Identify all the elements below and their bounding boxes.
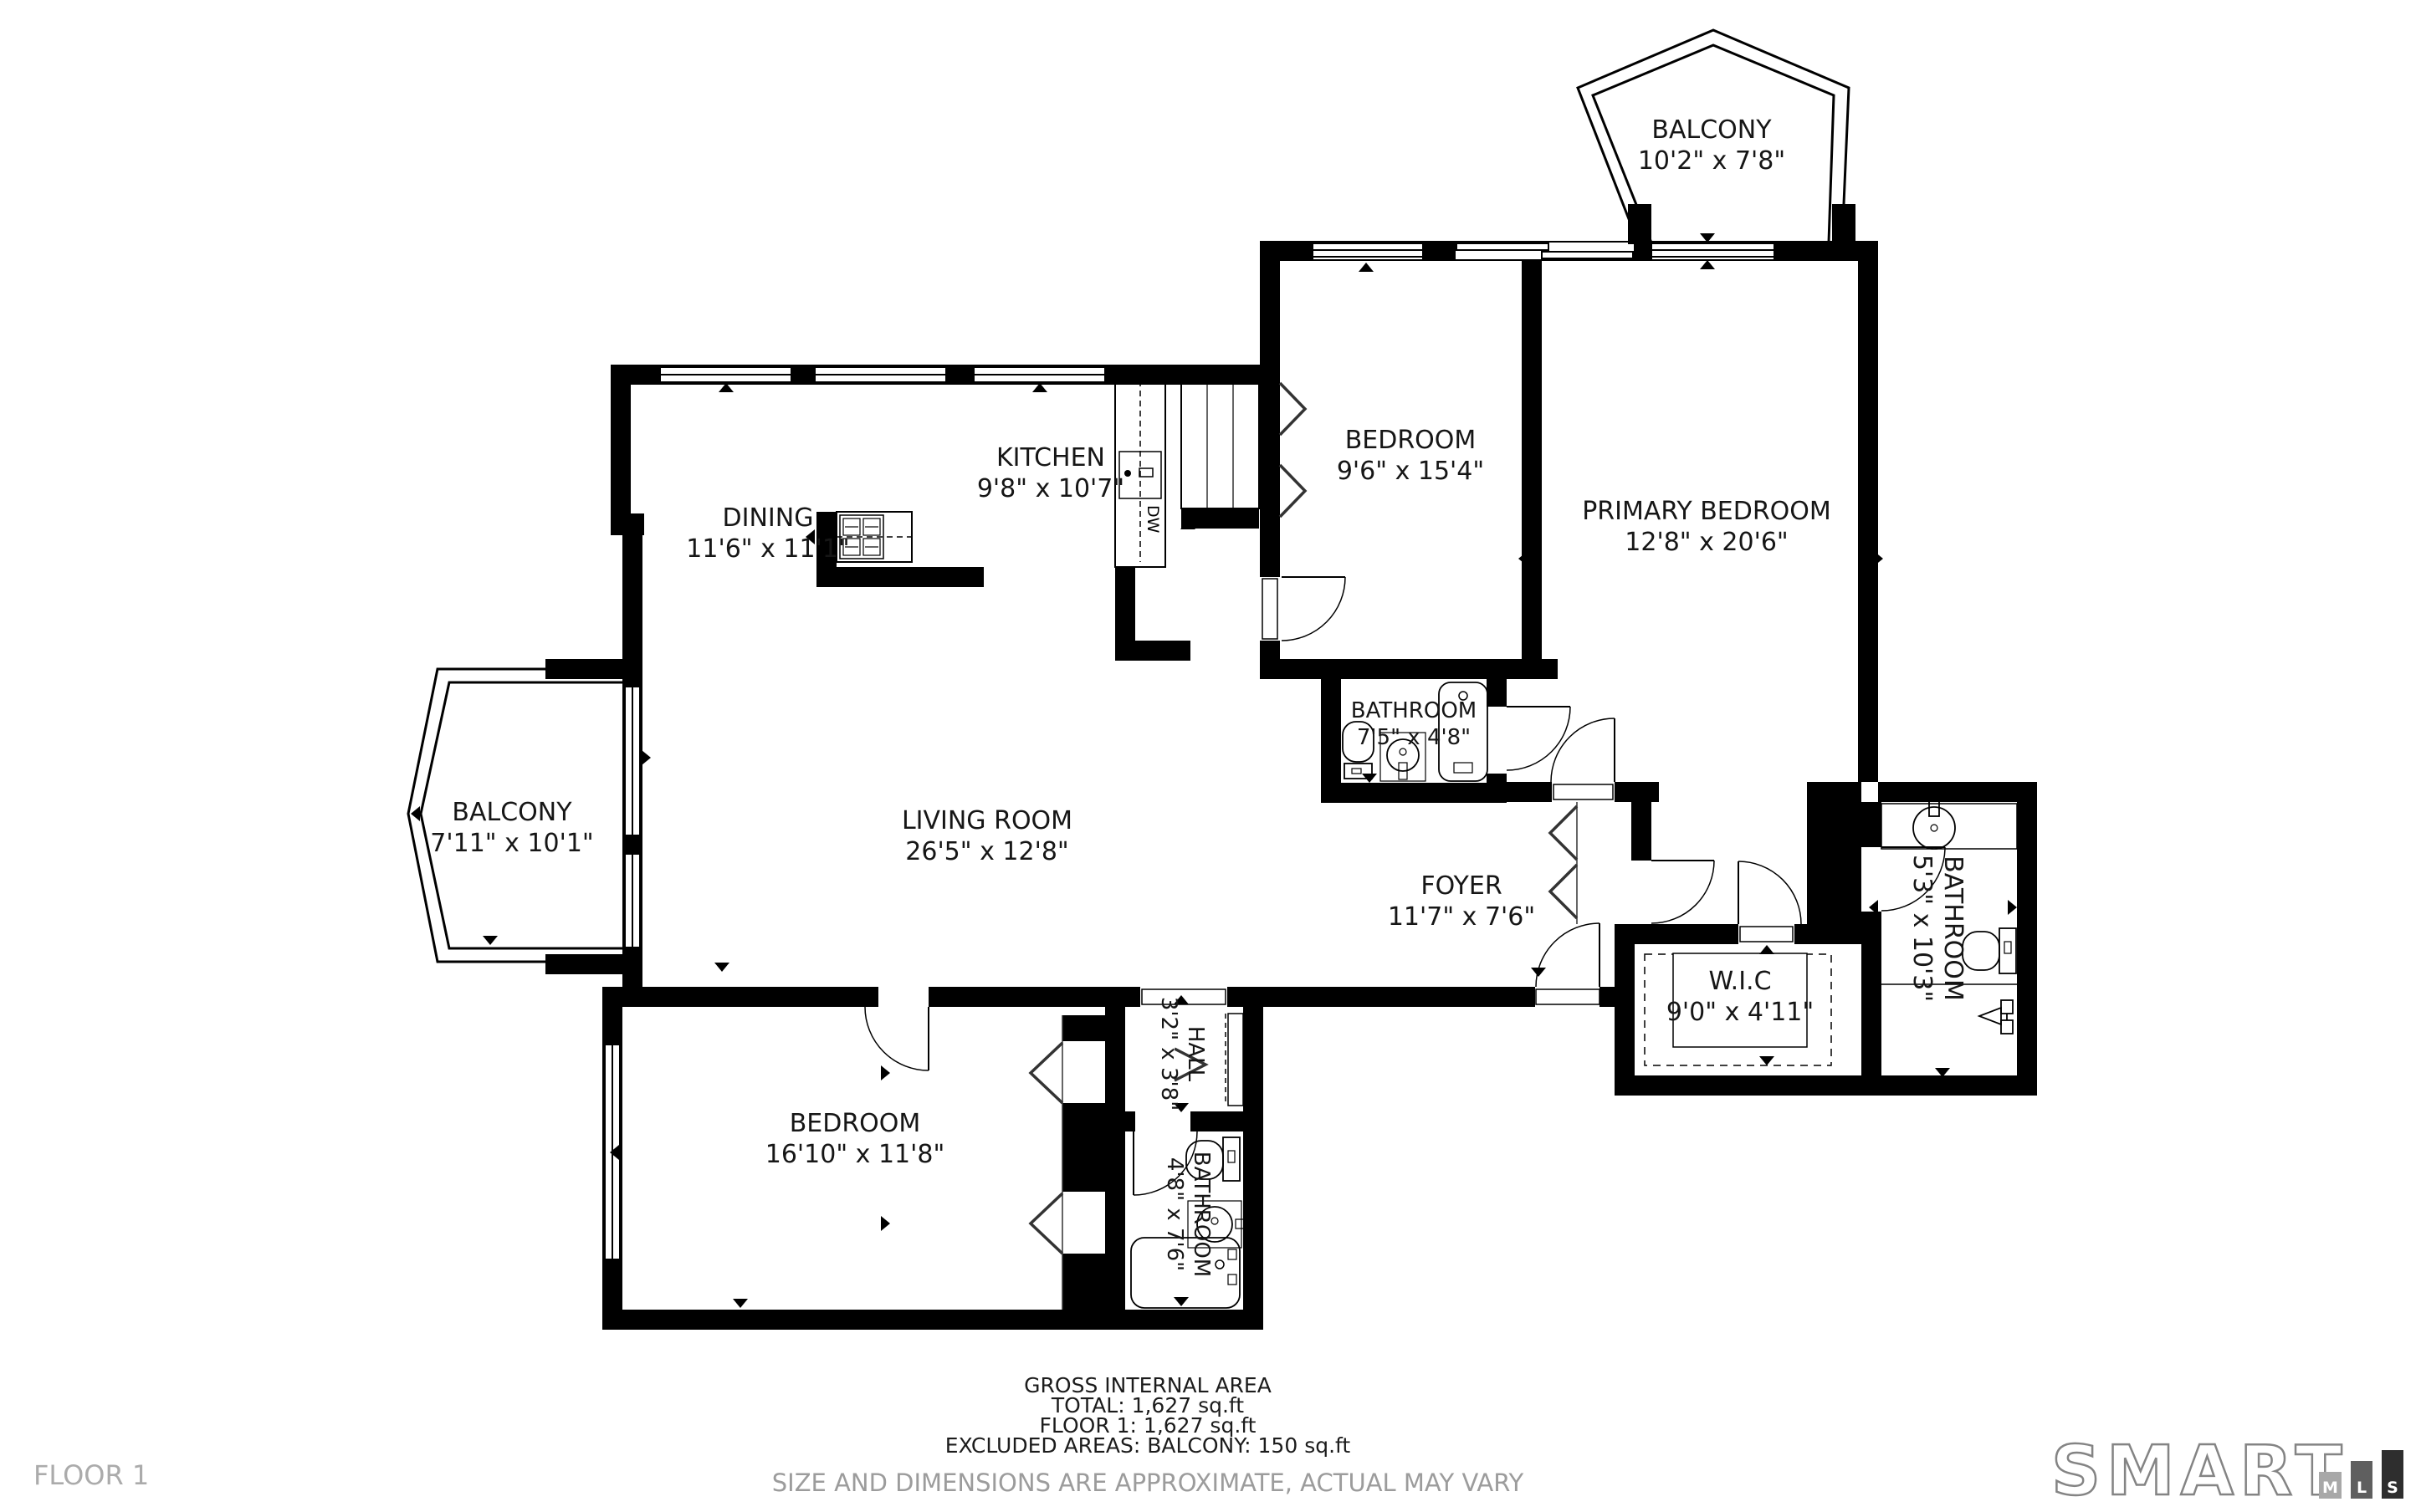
sliding-door-balcony-top	[1456, 243, 1634, 259]
room-label-primary-bedroom: PRIMARY BEDROOM 12'8" x 20'6"	[1582, 496, 1831, 558]
mls-letter-m: M	[2319, 1472, 2342, 1499]
floor-label: FLOOR 1	[33, 1459, 149, 1491]
room-dims: 11'7" x 7'6"	[1388, 902, 1535, 932]
room-name: DINING	[686, 503, 849, 534]
door-wic	[1738, 861, 1801, 924]
room-name: BALCONY	[1638, 115, 1785, 146]
room-label-dining: DINING 11'6" x 11'1"	[686, 503, 849, 564]
balcony-post-right	[1832, 204, 1855, 244]
room-name: KITCHEN	[977, 442, 1124, 473]
toilet-tank-ensuite	[1999, 928, 2016, 973]
window-living-1	[624, 687, 641, 835]
smartmls-logo: SMART M L S	[2051, 1432, 2411, 1505]
room-label-bathroom-primary: BATHROOM 7'5" x 4'8"	[1351, 697, 1477, 751]
room-dims: 9'6" x 15'4"	[1337, 456, 1484, 487]
door-entry	[1536, 923, 1599, 987]
room-name: BATHROOM	[1188, 1152, 1215, 1277]
window-living-2	[624, 855, 641, 947]
room-name: W.I.C	[1666, 966, 1814, 997]
room-dims: 3'2" x 3'8"	[1155, 997, 1182, 1111]
disclaimer-text: SIZE AND DIMENSIONS ARE APPROXIMATE, ACT…	[772, 1469, 1524, 1497]
room-dims: 26'5" x 12'8"	[902, 836, 1072, 867]
room-label-bathroom-hall: BATHROOM 4'8" x 7'6"	[1161, 1152, 1215, 1277]
floorplan-page: DW	[0, 0, 2421, 1512]
window-kitchen	[975, 366, 1104, 383]
refrigerator	[1181, 378, 1259, 508]
balcony-post-left	[1628, 204, 1651, 244]
sink-faucet	[1124, 470, 1131, 477]
door-foyer-corridor	[1651, 861, 1714, 923]
room-name: BEDROOM	[1337, 425, 1484, 456]
mls-letter-l: L	[2351, 1461, 2372, 1499]
floorplan-drawing: DW	[0, 0, 2421, 1512]
window-post	[622, 835, 642, 855]
smart-logo-text: SMART	[2051, 1432, 2348, 1511]
room-label-living-room: LIVING ROOM 26'5" x 12'8"	[902, 805, 1072, 867]
room-label-balcony-top: BALCONY 10'2" x 7'8"	[1638, 115, 1785, 176]
room-name: FOYER	[1388, 871, 1535, 902]
room-name: BATHROOM	[1937, 855, 1968, 1002]
room-label-hall: HALL 3'2" x 3'8"	[1155, 997, 1209, 1111]
room-label-bedroom-top: BEDROOM 9'6" x 15'4"	[1337, 425, 1484, 487]
window-dining-2	[816, 366, 945, 383]
shower-handle	[1979, 1000, 2013, 1034]
bifold-foyer-2	[1550, 865, 1577, 918]
room-label-wic: W.I.C 9'0" x 4'11"	[1666, 966, 1814, 1028]
room-label-foyer: FOYER 11'7" x 7'6"	[1388, 871, 1535, 932]
room-dims: 11'6" x 11'1"	[686, 534, 849, 564]
room-name: HALL	[1182, 997, 1209, 1111]
room-dims: 9'0" x 4'11"	[1666, 997, 1814, 1028]
vanity-sink	[1913, 807, 1955, 849]
bifold-foyer-1	[1550, 806, 1577, 860]
room-name: LIVING ROOM	[902, 805, 1072, 836]
sink-tap	[1139, 468, 1153, 477]
room-dims: 5'3" x 10'3"	[1907, 855, 1937, 1002]
area-summary: GROSS INTERNAL AREA TOTAL: 1,627 sq.ft F…	[945, 1376, 1350, 1456]
room-name: BALCONY	[430, 797, 593, 828]
bifold-bedroom-bottom-1	[1031, 1043, 1062, 1103]
room-label-bathroom-ensuite: BATHROOM 5'3" x 10'3"	[1907, 855, 1968, 1002]
window-primary	[1652, 243, 1774, 259]
bifold-bedroom-top-2	[1280, 465, 1305, 517]
door-bedroom-bottom	[865, 1007, 929, 1070]
bifold-bedroom-bottom-2	[1031, 1193, 1062, 1254]
room-name: BEDROOM	[765, 1108, 945, 1139]
hall-side-panel	[1228, 1014, 1243, 1106]
room-dims: 4'8" x 7'6"	[1161, 1152, 1188, 1277]
door-bedroom-top	[1282, 577, 1345, 641]
room-name: BATHROOM	[1351, 697, 1477, 724]
tub-faucet-hall	[1216, 1260, 1224, 1269]
room-dims: 12'8" x 20'6"	[1582, 527, 1831, 558]
room-dims: 16'10" x 11'8"	[765, 1139, 945, 1170]
direction-markers	[411, 233, 2017, 1308]
room-label-kitchen: KITCHEN 9'8" x 10'7"	[977, 442, 1124, 504]
dishwasher-label: DW	[1144, 505, 1162, 534]
bifold-bedroom-top-1	[1280, 383, 1305, 435]
room-name: PRIMARY BEDROOM	[1582, 496, 1831, 527]
door-bathroom-primary	[1507, 707, 1570, 770]
room-dims: 7'11" x 10'1"	[430, 828, 593, 859]
room-dims: 10'2" x 7'8"	[1638, 146, 1785, 176]
room-dims: 7'5" x 4'8"	[1351, 724, 1477, 751]
window-bedroom-top	[1313, 243, 1422, 259]
area-excluded: EXCLUDED AREAS: BALCONY: 150 sq.ft	[945, 1436, 1350, 1456]
room-label-bedroom-bottom: BEDROOM 16'10" x 11'8"	[765, 1108, 945, 1170]
room-label-balcony-left: BALCONY 7'11" x 10'1"	[430, 797, 593, 859]
mls-letter-s: S	[2382, 1450, 2403, 1499]
door-primary-bedroom	[1551, 718, 1615, 782]
toilet-tank-hall	[1223, 1137, 1240, 1181]
room-dims: 9'8" x 10'7"	[977, 473, 1124, 504]
window-dining-1	[661, 366, 791, 383]
